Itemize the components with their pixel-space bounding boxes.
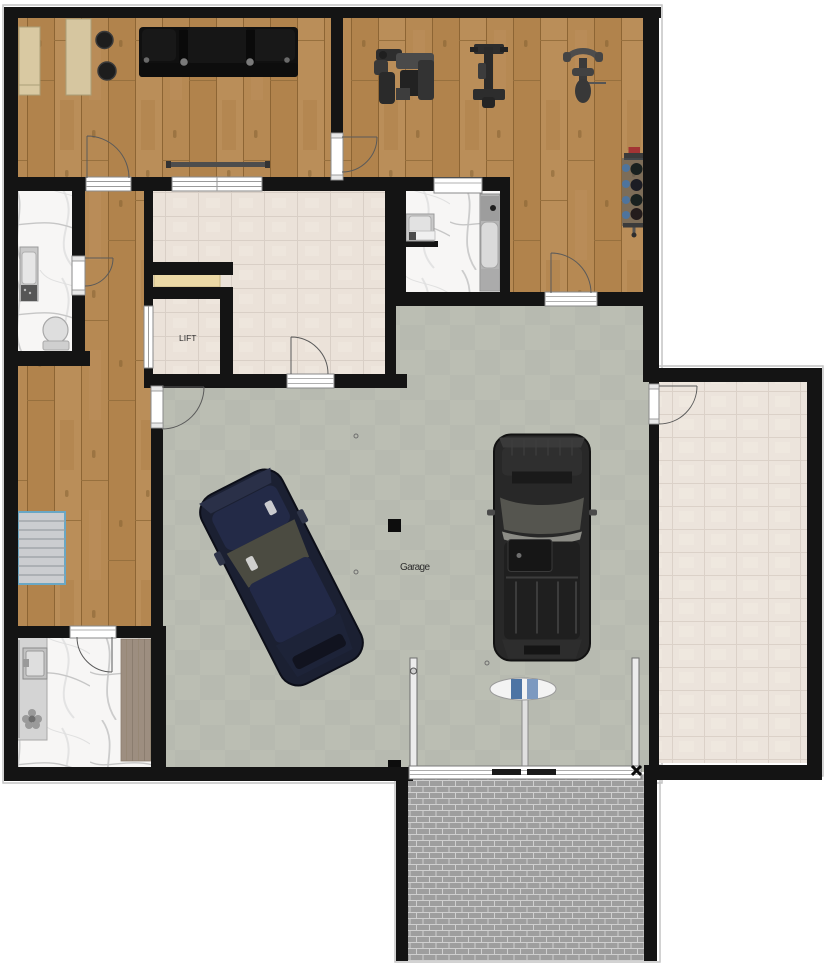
- svg-text:LIFT: LIFT: [179, 333, 196, 343]
- svg-text:Garage: Garage: [400, 562, 430, 573]
